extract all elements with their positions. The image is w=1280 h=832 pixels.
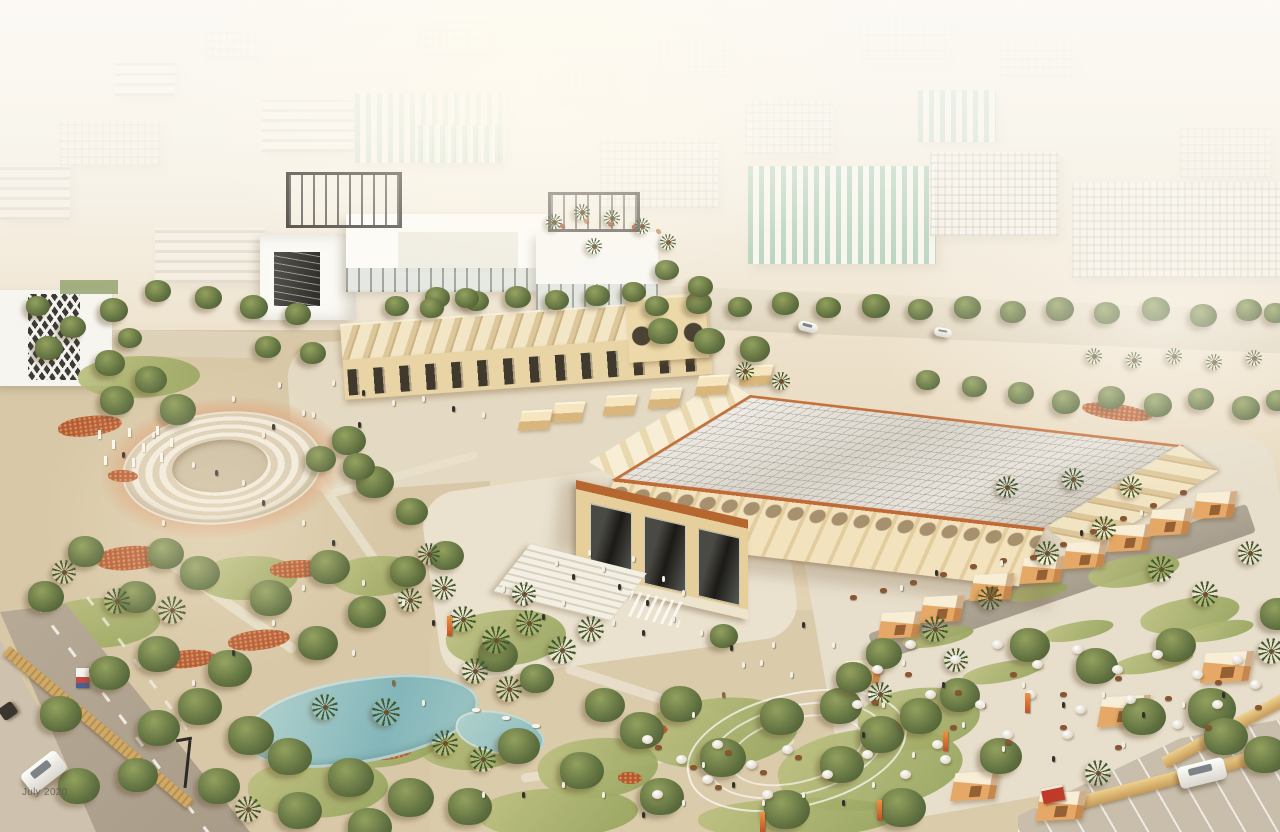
palm-tree: [1206, 354, 1222, 370]
tree: [145, 280, 171, 302]
palm-tree: [1126, 352, 1142, 368]
background-building: [205, 28, 260, 58]
background-building: [930, 152, 1058, 236]
entrance-glass-bay-3: [698, 528, 740, 606]
tree: [1188, 388, 1214, 410]
palm-tree: [660, 234, 676, 250]
flower-bed: [1081, 400, 1152, 424]
palm-tree: [772, 372, 790, 390]
tree: [916, 370, 940, 390]
tree: [1232, 396, 1260, 420]
background-building: [1000, 36, 1076, 76]
tree: [1266, 390, 1280, 411]
background-building: [262, 100, 354, 152]
background-building: [748, 166, 936, 264]
tree: [195, 286, 222, 309]
tree: [1098, 386, 1125, 409]
mashrabiya-lattice-panel: [28, 294, 80, 380]
background-building: [60, 120, 160, 166]
arts-center-glass-band: [346, 268, 556, 292]
background-building: [418, 20, 488, 56]
background-building: [860, 16, 950, 60]
arts-center-dark-facade: [274, 252, 320, 306]
tree: [740, 336, 770, 362]
background-building: [0, 165, 70, 220]
background-building: [540, 60, 610, 100]
background-building: [115, 58, 175, 96]
arts-center-courtyard: [398, 232, 518, 272]
background-building: [418, 125, 500, 163]
date-caption: July 2020: [22, 787, 68, 798]
park-entrance-sign: [76, 668, 89, 688]
tree: [962, 376, 987, 397]
lattice-building-green-roof: [60, 280, 118, 294]
souq-arcade-gate: [625, 292, 709, 362]
background-building: [1180, 128, 1270, 178]
background-building: [745, 100, 833, 154]
palm-tree: [736, 362, 754, 380]
entrance-glass-bay-2: [644, 516, 686, 594]
tree: [1008, 382, 1034, 404]
canopy-stall: [738, 364, 773, 386]
background-building: [660, 40, 730, 76]
tree: [1052, 390, 1080, 414]
palm-tree: [1166, 348, 1182, 364]
tree: [655, 260, 679, 280]
background-building: [1072, 182, 1280, 278]
lattice-building: [0, 272, 118, 412]
palm-tree: [1086, 348, 1102, 364]
rendering-canvas: July 2020: [0, 0, 1280, 832]
background-building: [918, 90, 996, 142]
background-building: [355, 93, 505, 163]
arts-center-roof-pergola-2: [548, 192, 640, 232]
arts-center-roof-pergola: [286, 172, 402, 228]
road-top-right: [619, 284, 1280, 354]
amphitheater: [100, 398, 345, 538]
tree: [1144, 393, 1172, 417]
